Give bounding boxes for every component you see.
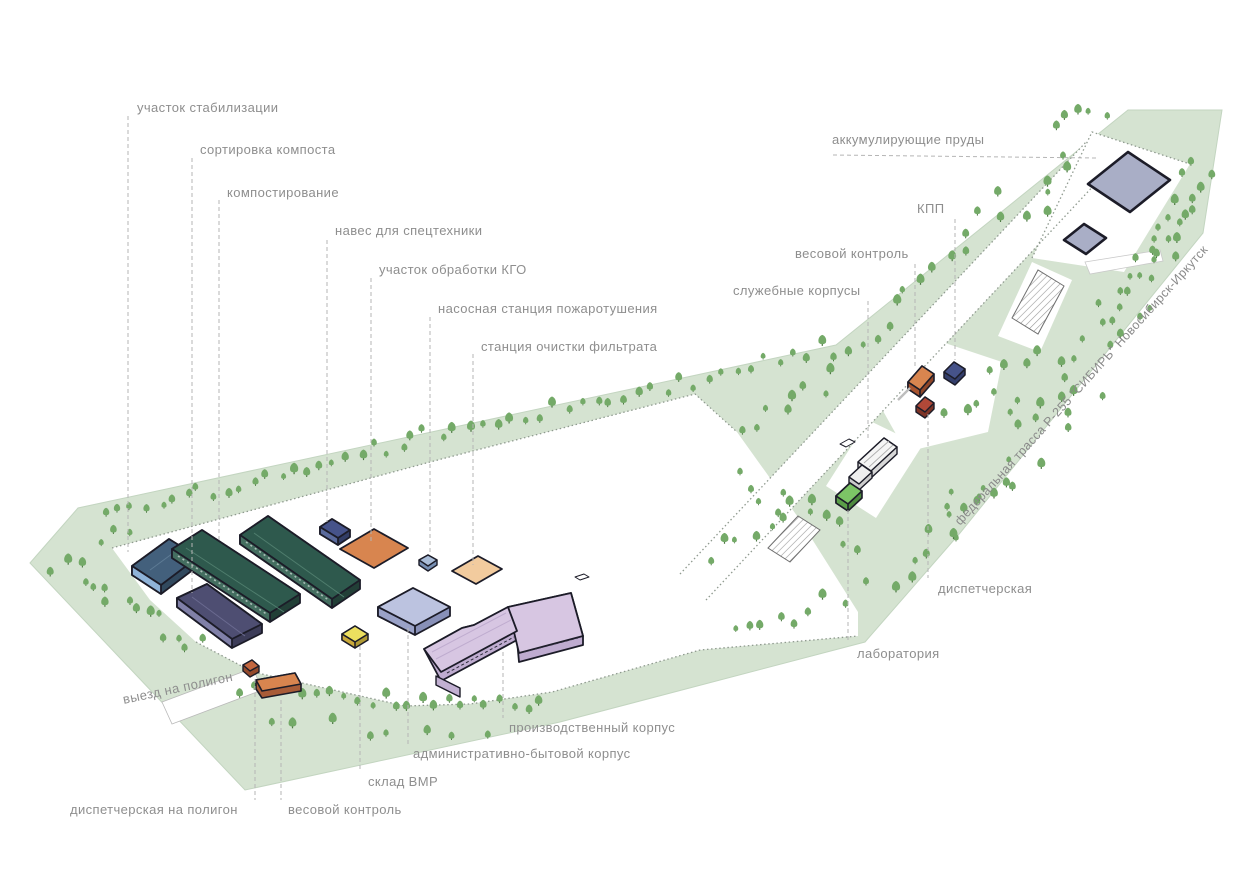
label-filtrate-station: станция очистки фильтрата [481, 340, 657, 353]
label-dispatcher-landfill: диспетчерская на полигон [70, 803, 238, 816]
tree-icon [418, 424, 424, 433]
tree-icon [1060, 151, 1066, 159]
label-vmr-warehouse: склад ВМР [368, 775, 438, 788]
label-accumulating-ponds: аккумулирующие пруды [832, 133, 984, 146]
label-service-buildings: служебные корпусы [733, 284, 860, 297]
tree-icon [1053, 120, 1060, 130]
label-fire-pump-station: насосная станция пожаротушения [438, 302, 658, 315]
tree-icon [1100, 392, 1106, 400]
tree-icon [1105, 112, 1110, 120]
label-production-building: производственный корпус [509, 721, 675, 734]
label-bulky-waste-area: участок обработки КГО [379, 263, 527, 276]
label-admin-building: административно-бытовой корпус [413, 747, 631, 760]
tree-icon [974, 206, 981, 215]
label-weight-control-landfill: весовой контроль [288, 803, 402, 816]
tree-icon [994, 186, 1001, 196]
site-plan-canvas: участок стабилизации сортировка компоста… [0, 0, 1260, 891]
tree-icon [1009, 481, 1016, 490]
label-composting: компостирование [227, 186, 339, 199]
tree-icon [1037, 458, 1045, 469]
label-machinery-shed: навес для спецтехники [335, 224, 482, 237]
label-dispatcher-office: диспетчерская [938, 582, 1032, 595]
tree-icon [1074, 104, 1082, 115]
tree-icon [818, 335, 826, 346]
tree-icon [962, 229, 969, 239]
tree-icon [1061, 110, 1068, 120]
label-compost-sorting: сортировка компоста [200, 143, 335, 156]
label-stabilization-area: участок стабилизации [137, 101, 278, 114]
tree-icon [1086, 108, 1091, 115]
label-weight-control-entrance: весовой контроль [795, 247, 909, 260]
label-laboratory: лаборатория [857, 647, 940, 660]
label-checkpoint: КПП [917, 202, 944, 215]
tree-icon [761, 353, 766, 360]
leader-ponds [833, 155, 1096, 158]
tree-icon [1065, 423, 1072, 432]
